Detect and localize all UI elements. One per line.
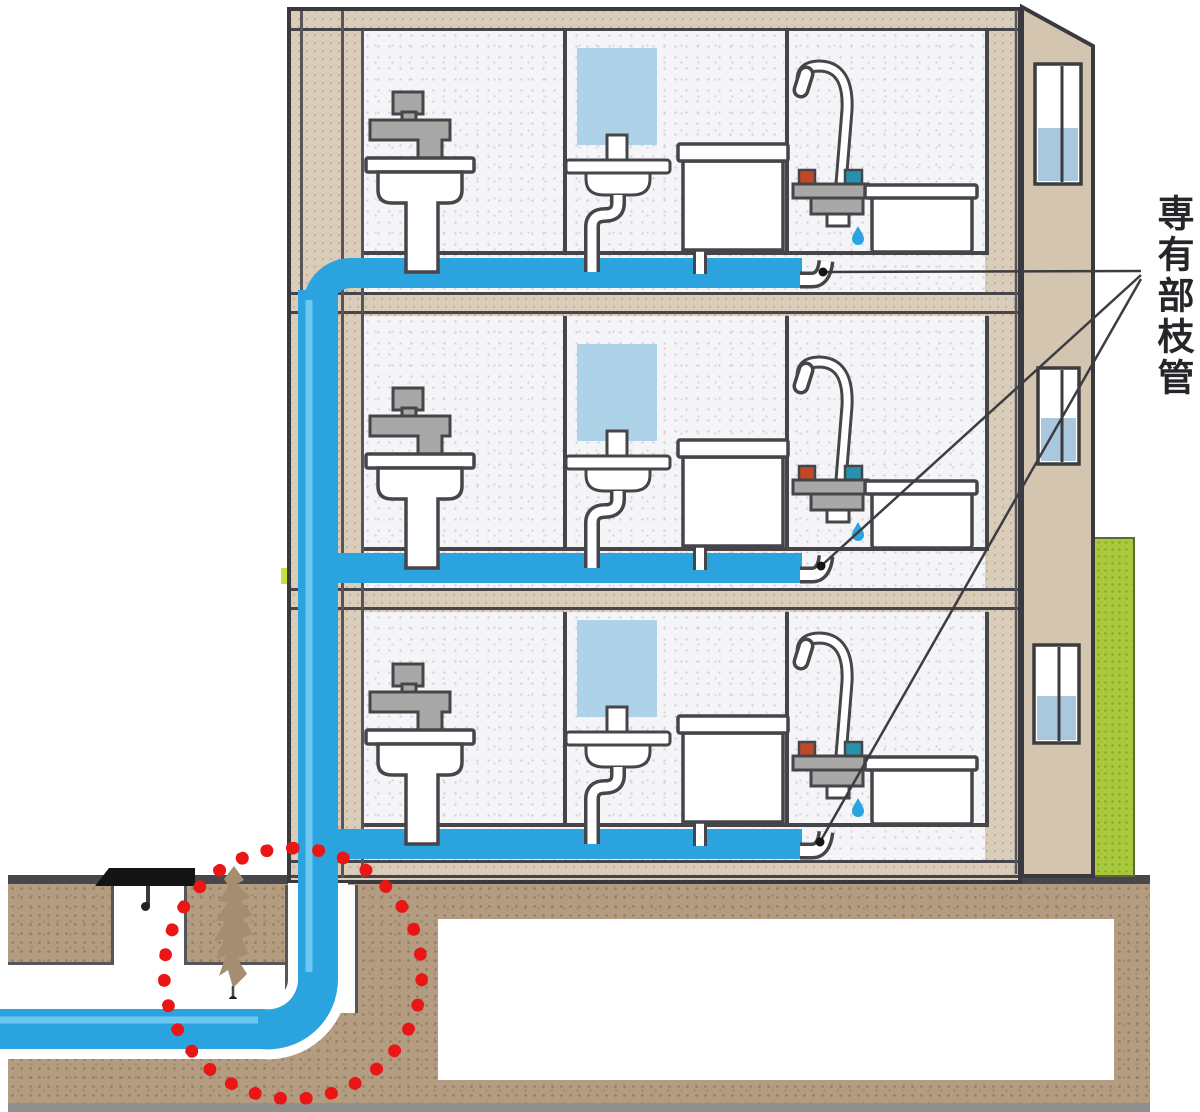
floor-fixtures-2f bbox=[366, 344, 977, 570]
side-window-1f bbox=[1034, 645, 1079, 743]
side-window-3f bbox=[1035, 64, 1081, 184]
floor-fixtures-1f bbox=[366, 620, 977, 846]
branch-pipe-3f bbox=[318, 273, 802, 306]
building-side-face bbox=[1016, 7, 1093, 876]
branch-pipe-label: 専有部枝管 bbox=[1144, 194, 1192, 404]
plumbing-diagram: 専有部枝管 bbox=[0, 0, 1200, 1112]
highlight-circle bbox=[158, 842, 428, 1105]
floor-fixtures-3f bbox=[366, 48, 977, 274]
